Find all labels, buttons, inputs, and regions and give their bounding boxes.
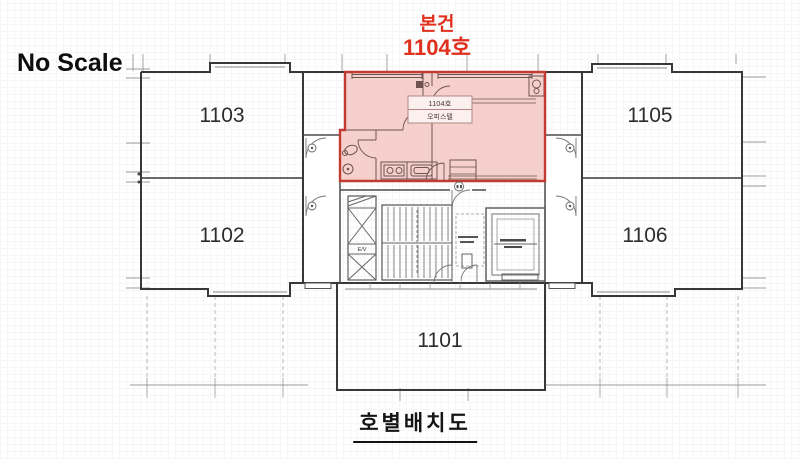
floor-plan-page: 1104호 오피스텔 E/V No Scale 본건 1104호 1103 11…: [0, 0, 800, 459]
unit-label-1106: 1106: [622, 224, 667, 248]
stair-treads-upper: [388, 207, 448, 241]
bath-sink-drain: [347, 168, 350, 171]
hall-text-mark: [460, 241, 474, 243]
stairs: [382, 205, 452, 283]
elevator-vent-hatch: [348, 196, 376, 206]
corridor-door-arc: [452, 190, 470, 208]
corridor-window-right: [549, 283, 575, 289]
subject-unit-1104: 1104호 오피스텔: [340, 72, 545, 191]
right-ticks: [742, 77, 766, 288]
left-wing-top-right-wall: [141, 63, 303, 283]
door-dot: [569, 205, 571, 207]
subject-callout-line1: 본건: [403, 15, 471, 36]
unit-tag-type: 오피스텔: [427, 112, 453, 121]
hall-text-mark: [458, 236, 478, 238]
corridor-hall: [456, 214, 484, 283]
drawing-title: 호별배치도: [353, 407, 477, 443]
door-dot: [311, 205, 313, 207]
sensor-icon: [416, 81, 423, 88]
unit-entry-marker-glyph: [460, 185, 462, 188]
machine-room-text-mark: [504, 246, 522, 248]
vestibule-left: [303, 135, 340, 283]
no-scale-note: No Scale: [17, 49, 123, 78]
door-dot: [311, 147, 313, 149]
elevator-label: E/V: [358, 247, 367, 253]
machine-room: [486, 208, 545, 281]
right-wing-window-lines: [597, 68, 670, 292]
elevator-x-1: [348, 208, 376, 244]
unit-entry-marker-circle: [455, 182, 464, 191]
unit-1104-fill: [340, 72, 545, 181]
machine-room-text-mark: [500, 239, 526, 242]
subject-callout-line2: 1104호: [403, 36, 471, 60]
elevator-x-2: [348, 254, 376, 280]
door-dot: [569, 147, 571, 149]
unit-tag-number: 1104호: [428, 99, 451, 108]
unit-label-1101: 1101: [417, 329, 462, 353]
elevator-shaft: [348, 196, 376, 280]
unit-1104-tag: 1104호 오피스텔: [408, 96, 472, 123]
stair-treads-lower: [388, 245, 448, 278]
unit-label-1102: 1102: [199, 224, 244, 248]
unit-entry-marker-glyph: [457, 185, 459, 188]
core-stairwell: [340, 190, 545, 283]
corridor-window-left: [305, 283, 331, 289]
hall-dashed-zone: [456, 214, 484, 266]
vestibule-right: [545, 135, 582, 283]
unit-label-1103: 1103: [199, 104, 244, 128]
unit-label-1105: 1105: [627, 104, 672, 128]
subject-callout: 본건 1104호: [403, 15, 471, 59]
left-wing-window-lines: [213, 67, 287, 292]
